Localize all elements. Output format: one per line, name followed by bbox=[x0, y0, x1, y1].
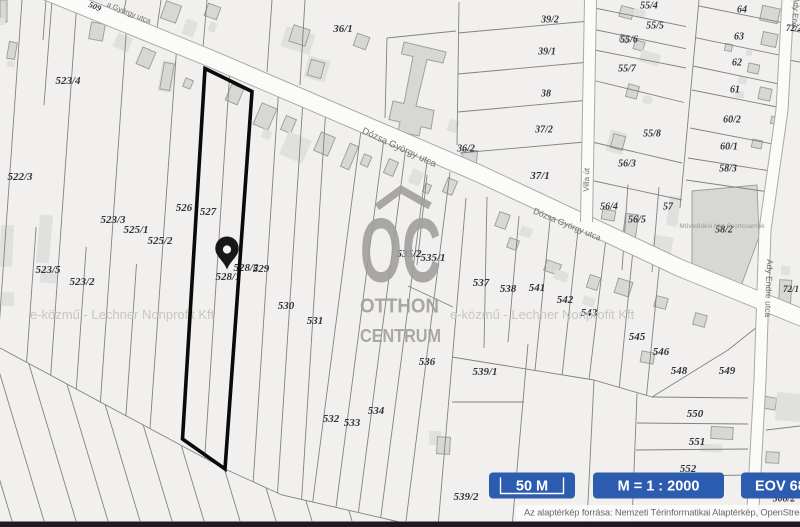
svg-text:525/1: 525/1 bbox=[123, 224, 148, 236]
svg-text:532: 532 bbox=[323, 413, 340, 425]
svg-text:527: 527 bbox=[200, 206, 217, 218]
svg-text:551: 551 bbox=[689, 436, 706, 448]
svg-text:523/5: 523/5 bbox=[35, 264, 61, 276]
svg-text:549: 549 bbox=[719, 365, 736, 377]
svg-text:60/2: 60/2 bbox=[723, 115, 741, 126]
svg-text:e-közmű - Lechner Nonprofit Kf: e-közmű - Lechner Nonprofit Kft bbox=[30, 307, 215, 322]
svg-text:64: 64 bbox=[737, 5, 747, 16]
svg-text:36/2: 36/2 bbox=[456, 144, 475, 155]
svg-text:530: 530 bbox=[278, 300, 295, 312]
svg-text:EOV 681: EOV 681 bbox=[755, 479, 800, 495]
svg-text:55/4: 55/4 bbox=[640, 1, 658, 12]
svg-text:55/5: 55/5 bbox=[646, 21, 664, 32]
svg-text:55/6: 55/6 bbox=[620, 35, 638, 46]
svg-text:37/2: 37/2 bbox=[534, 125, 553, 136]
svg-text:61: 61 bbox=[730, 85, 740, 96]
svg-text:60/1: 60/1 bbox=[720, 142, 738, 153]
svg-text:58/3: 58/3 bbox=[719, 164, 737, 175]
svg-text:36/1: 36/1 bbox=[332, 23, 353, 35]
svg-text:55/8: 55/8 bbox=[643, 129, 661, 140]
svg-text:523/3: 523/3 bbox=[100, 214, 126, 226]
svg-text:548: 548 bbox=[671, 365, 688, 377]
svg-text:541: 541 bbox=[529, 282, 546, 294]
svg-text:55/7: 55/7 bbox=[618, 64, 637, 75]
svg-text:63: 63 bbox=[734, 32, 744, 43]
svg-text:39/1: 39/1 bbox=[537, 47, 556, 58]
svg-text:537: 537 bbox=[473, 277, 490, 289]
svg-text:56/3: 56/3 bbox=[618, 159, 636, 170]
svg-text:OC: OC bbox=[360, 201, 441, 302]
svg-text:62: 62 bbox=[732, 58, 742, 69]
svg-text:37/1: 37/1 bbox=[529, 170, 550, 182]
svg-text:545: 545 bbox=[629, 331, 646, 343]
svg-text:539/2: 539/2 bbox=[453, 491, 479, 503]
svg-text:72/1: 72/1 bbox=[783, 284, 799, 294]
svg-text:525/2: 525/2 bbox=[147, 235, 173, 247]
svg-text:M = 1 : 2000: M = 1 : 2000 bbox=[618, 479, 700, 495]
svg-text:Villa út: Villa út bbox=[582, 167, 592, 192]
svg-text:536: 536 bbox=[419, 356, 436, 368]
svg-text:39/2: 39/2 bbox=[540, 15, 559, 26]
svg-text:e-közmű - Lechner Nonprofit Kf: e-közmű - Lechner Nonprofit Kft bbox=[450, 307, 635, 322]
svg-text:56/5: 56/5 bbox=[628, 215, 646, 226]
svg-text:OTTHON: OTTHON bbox=[360, 296, 439, 318]
svg-text:550: 550 bbox=[687, 408, 704, 420]
svg-text:522/3: 522/3 bbox=[7, 171, 33, 183]
svg-text:539/1: 539/1 bbox=[472, 366, 497, 378]
svg-text:Ady Endre utca: Ady Endre utca bbox=[763, 259, 775, 318]
svg-text:531: 531 bbox=[307, 315, 324, 327]
svg-text:56/4: 56/4 bbox=[600, 202, 618, 213]
svg-text:529: 529 bbox=[253, 263, 270, 275]
svg-text:533: 533 bbox=[344, 417, 361, 429]
svg-text:57: 57 bbox=[663, 202, 674, 213]
svg-text:534: 534 bbox=[368, 405, 385, 417]
svg-text:CENTRUM: CENTRUM bbox=[360, 326, 441, 346]
svg-text:526: 526 bbox=[176, 202, 193, 214]
svg-text:538: 538 bbox=[500, 283, 517, 295]
svg-text:523/2: 523/2 bbox=[69, 276, 95, 288]
svg-text:546: 546 bbox=[653, 346, 670, 358]
svg-text:523/4: 523/4 bbox=[55, 75, 81, 87]
svg-text:Az alaptérkép forrása: Nemzeti: Az alaptérkép forrása: Nemzeti Térinform… bbox=[524, 507, 800, 518]
svg-text:38: 38 bbox=[540, 89, 551, 100]
svg-text:50 M: 50 M bbox=[516, 479, 548, 495]
svg-text:Művelődési ház Sportcsarnok: Művelődési ház Sportcsarnok bbox=[679, 223, 765, 230]
svg-text:542: 542 bbox=[557, 294, 574, 306]
